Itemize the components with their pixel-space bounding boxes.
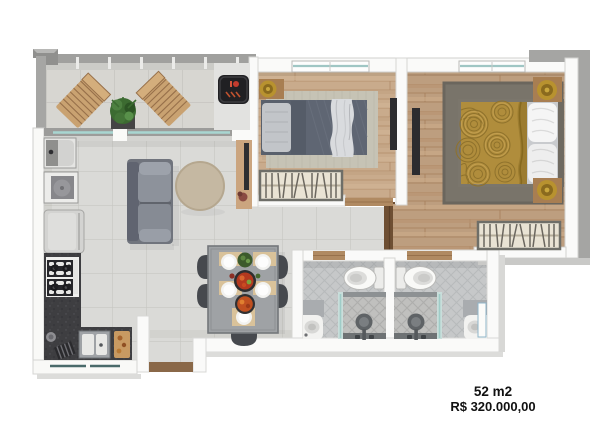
svg-text:52 m2: 52 m2 — [474, 384, 512, 399]
svg-text:R$ 320.000,00: R$ 320.000,00 — [450, 399, 535, 414]
